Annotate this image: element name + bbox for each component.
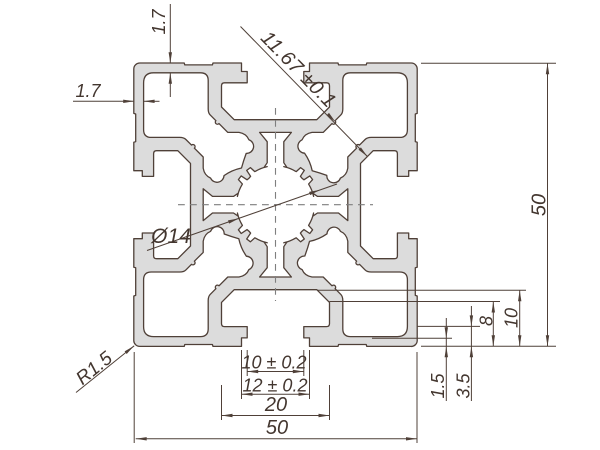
svg-text:1.7: 1.7 (75, 81, 101, 101)
svg-text:1.7: 1.7 (149, 9, 169, 35)
svg-text:50: 50 (529, 194, 551, 216)
svg-text:Ø14: Ø14 (150, 225, 191, 248)
svg-text:12 ± 0.2: 12 ± 0.2 (243, 375, 308, 395)
svg-text:10: 10 (502, 308, 522, 328)
svg-text:3.5: 3.5 (454, 373, 474, 399)
svg-text:1.5: 1.5 (428, 373, 448, 399)
svg-text:10 ± 0.2: 10 ± 0.2 (242, 352, 307, 372)
svg-text:20: 20 (264, 394, 287, 416)
svg-text:50: 50 (266, 417, 288, 439)
svg-text:8: 8 (477, 316, 497, 326)
